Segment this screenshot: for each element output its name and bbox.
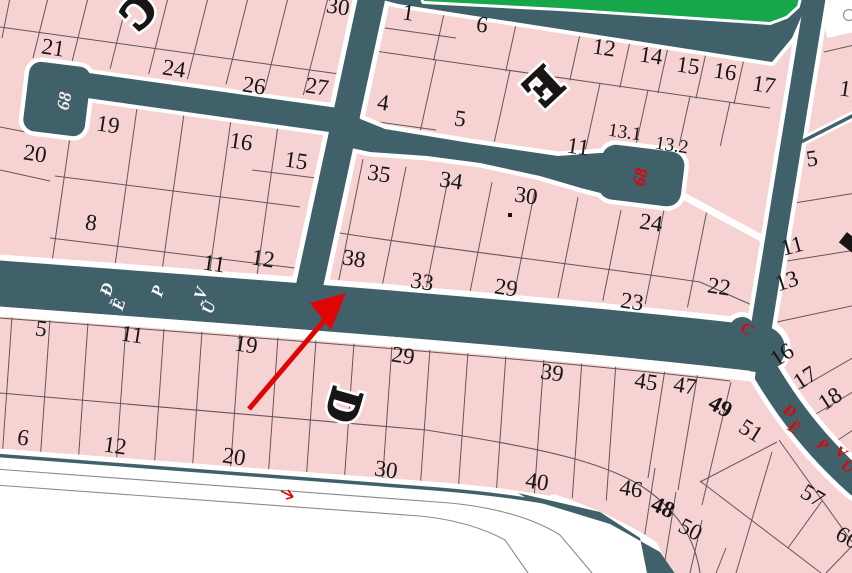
svg-text:24: 24 — [161, 55, 188, 83]
svg-text:30: 30 — [325, 0, 351, 21]
svg-text:68: 68 — [629, 166, 652, 187]
svg-text:30: 30 — [513, 182, 539, 210]
svg-text:24: 24 — [638, 209, 665, 237]
svg-text:12: 12 — [102, 432, 128, 460]
svg-text:23: 23 — [619, 288, 645, 316]
svg-text:38: 38 — [341, 245, 367, 273]
svg-text:34: 34 — [438, 167, 465, 195]
svg-text:39: 39 — [539, 359, 565, 387]
svg-text:21: 21 — [40, 34, 66, 62]
svg-text:26: 26 — [241, 72, 267, 100]
svg-text:15: 15 — [675, 52, 701, 80]
svg-text:29: 29 — [493, 274, 519, 302]
svg-text:15: 15 — [283, 147, 309, 175]
svg-text:40: 40 — [524, 468, 550, 496]
svg-text:20: 20 — [22, 140, 48, 168]
svg-text:20: 20 — [221, 443, 247, 471]
svg-text:35: 35 — [366, 160, 392, 188]
svg-text:27: 27 — [304, 73, 330, 101]
svg-text:14: 14 — [638, 42, 665, 70]
svg-text:11: 11 — [565, 133, 591, 161]
svg-text:16: 16 — [712, 58, 738, 86]
svg-text:46: 46 — [618, 475, 644, 503]
svg-text:11: 11 — [119, 321, 145, 349]
svg-text:19: 19 — [95, 111, 121, 139]
svg-text:47: 47 — [672, 372, 698, 400]
svg-text:33: 33 — [409, 268, 435, 296]
svg-text:11: 11 — [201, 250, 227, 278]
svg-text:30: 30 — [373, 456, 399, 484]
svg-text:68: 68 — [53, 90, 76, 111]
svg-text:16: 16 — [228, 128, 254, 156]
svg-text:17: 17 — [751, 71, 777, 99]
svg-text:22: 22 — [706, 273, 732, 301]
svg-text:12: 12 — [250, 245, 276, 273]
svg-text:45: 45 — [633, 368, 659, 396]
svg-text:29: 29 — [390, 342, 416, 370]
svg-text:19: 19 — [233, 331, 259, 359]
svg-text:12: 12 — [591, 34, 617, 62]
